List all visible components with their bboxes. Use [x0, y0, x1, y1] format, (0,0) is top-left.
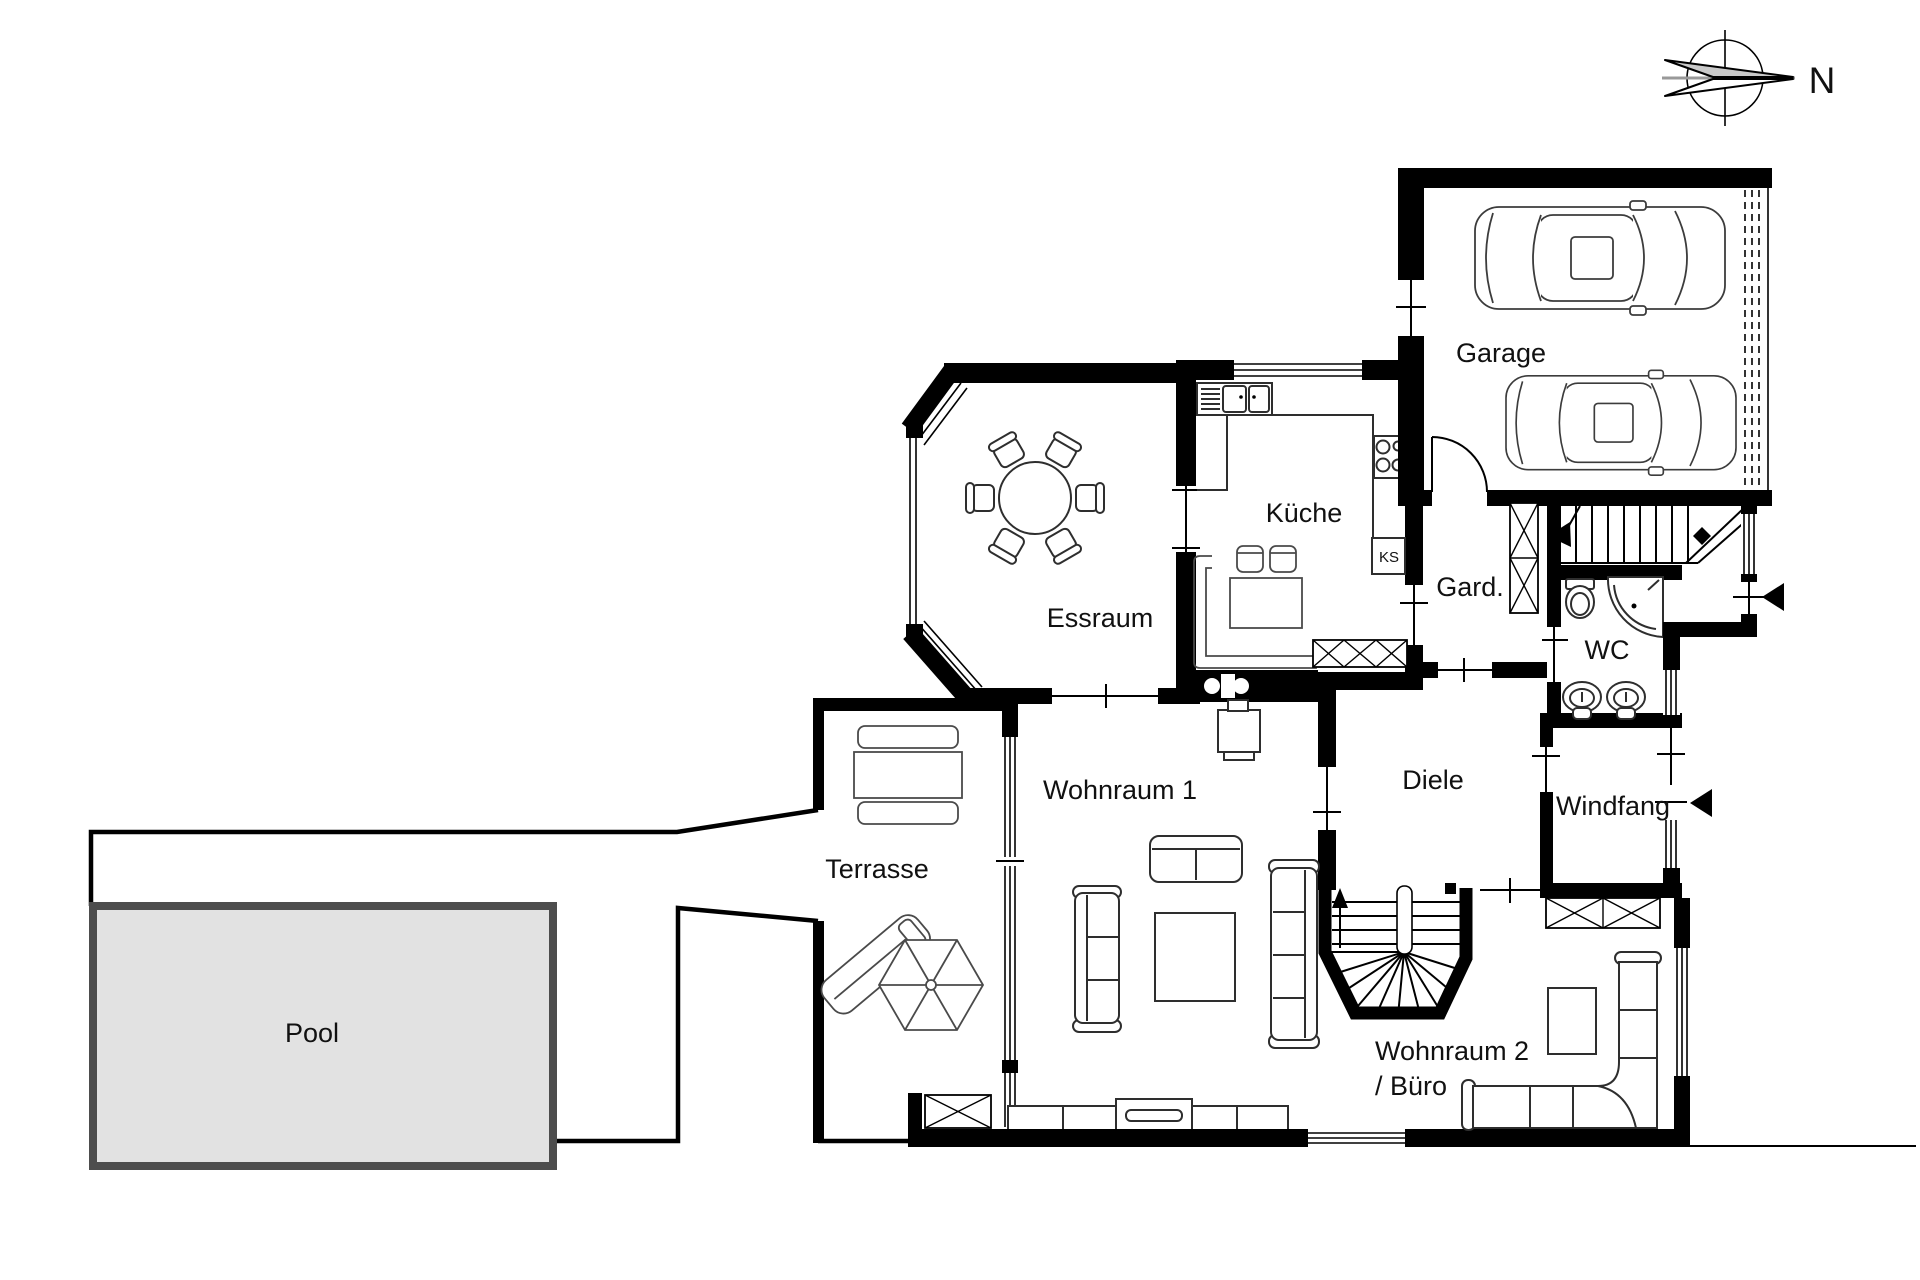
wohnraum1-sideboard: [1008, 1099, 1288, 1130]
boundary-line-upper: [91, 810, 818, 906]
room-label-pool: Pool: [285, 1018, 339, 1048]
room-label-essraum: Essraum: [1047, 603, 1154, 633]
essraum-dining-set: [966, 431, 1104, 566]
wohnraum1-sofa-top: [1150, 836, 1242, 882]
kueche-cabinet-hatch: [1313, 640, 1407, 667]
south-wall: [908, 1129, 1690, 1147]
gard: Gard.: [1422, 503, 1561, 682]
garage: Garage: [1396, 168, 1772, 506]
compass-north-label: N: [1809, 60, 1836, 101]
kueche-sink-unit: [1197, 383, 1272, 415]
terrasse: Terrasse: [813, 698, 1005, 1143]
wohnraum1-window-west-1: [1002, 737, 1018, 857]
stairhall-window-east: [1741, 514, 1757, 574]
diele: Diele: [1313, 690, 1543, 903]
room-label-wc: WC: [1585, 635, 1630, 665]
wohnraum2-desk: [1548, 988, 1596, 1054]
floor-plan-canvas: N Pool: [0, 0, 1920, 1280]
wohnraum1: Wohnraum 1: [996, 670, 1319, 1130]
kueche-counter-left: [1197, 415, 1227, 490]
terrasse-closet-hatch: [925, 1095, 991, 1128]
wohnraum2: Wohnraum 2 / Büro: [1325, 883, 1690, 1131]
kueche-bench-set: [1194, 546, 1316, 668]
entry-arrow-windfang-icon: [1690, 789, 1712, 817]
floor-plan-svg: N Pool: [0, 0, 1920, 1280]
room-label-terrasse: Terrasse: [825, 854, 929, 884]
essraum-window-west: [906, 438, 923, 624]
stairs-up-arrow: [1332, 888, 1348, 908]
gard-closet-hatch: [1510, 503, 1538, 613]
wc-shower: [1608, 577, 1663, 637]
kueche-window-north: [1234, 360, 1362, 380]
wohnraum2-window-south: [1308, 1129, 1405, 1147]
wohnraum1-coffee-table: [1155, 913, 1235, 1001]
wohnraum1-window-west-2: [1002, 866, 1018, 1060]
dining-chair: [1076, 483, 1104, 513]
wohnraum1-sofa-right: [1269, 860, 1319, 1048]
room-label-wohnraum1: Wohnraum 1: [1043, 775, 1197, 805]
wohnraum2-closet-hatch: [1546, 898, 1660, 928]
kueche-fridge: KS: [1372, 538, 1405, 574]
wc-window-east: [1663, 670, 1680, 715]
boundary-line-lower: [553, 908, 818, 1141]
wohnraum2-window-east: [1674, 948, 1690, 1076]
compass: N: [1662, 30, 1835, 126]
room-label-windfang: Windfang: [1556, 791, 1670, 821]
terrasse-table-set: [854, 726, 962, 824]
wohnraum1-sofa-left: [1073, 886, 1121, 1032]
compass-arrow-north-icon: [1665, 60, 1793, 77]
garage-car-1: [1475, 201, 1725, 315]
fireplace-wall-block: [1196, 670, 1318, 702]
east-wall: [1655, 506, 1784, 898]
garage-door-arc: [1432, 437, 1487, 492]
wood-stove: [1218, 700, 1260, 760]
stairs-upper: [1548, 506, 1756, 563]
room-label-wohnraum2-line2: / Büro: [1375, 1071, 1447, 1101]
room-label-diele: Diele: [1402, 765, 1464, 795]
room-label-wohnraum2-line1: Wohnraum 2: [1375, 1036, 1529, 1066]
garage-car-2: [1506, 370, 1736, 475]
windfang-window-east: [1663, 820, 1680, 868]
fridge-label: KS: [1379, 549, 1399, 566]
kueche: KS Küche: [1172, 360, 1428, 690]
stairs-curved: [1325, 883, 1466, 1016]
wc: WC: [1540, 565, 1682, 728]
room-label-garage: Garage: [1456, 338, 1546, 368]
garage-door-dashed: [1745, 188, 1768, 506]
entry-arrow-upper-icon: [1762, 583, 1784, 611]
room-label-gard: Gard.: [1436, 572, 1504, 602]
wc-toilet: [1566, 579, 1594, 618]
room-label-kueche: Küche: [1266, 498, 1343, 528]
essraum: Essraum: [906, 363, 1200, 708]
